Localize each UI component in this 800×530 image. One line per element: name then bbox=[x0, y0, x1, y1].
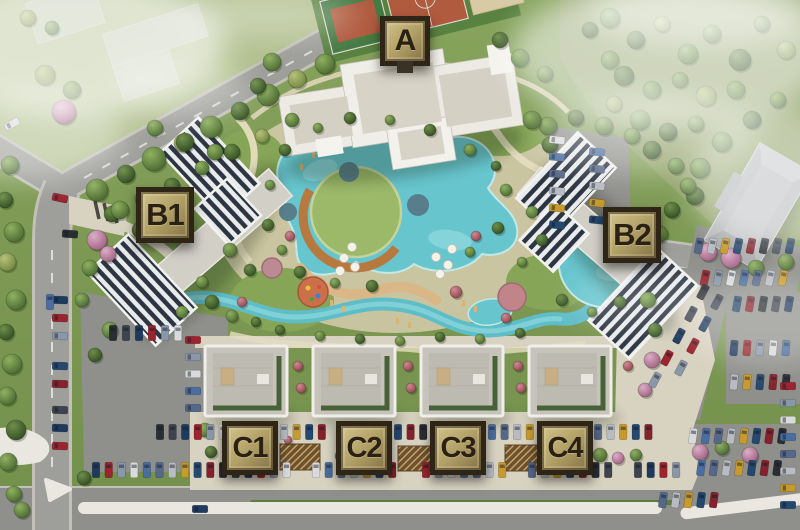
tree bbox=[516, 383, 526, 393]
car bbox=[52, 296, 68, 304]
tree bbox=[275, 325, 285, 335]
playground-round bbox=[298, 277, 328, 307]
tree bbox=[344, 112, 356, 124]
car bbox=[52, 332, 68, 340]
car bbox=[607, 424, 615, 440]
car bbox=[318, 424, 326, 440]
tree bbox=[205, 295, 219, 309]
tree bbox=[366, 280, 378, 292]
tree bbox=[244, 264, 256, 276]
car bbox=[549, 220, 565, 229]
car bbox=[62, 230, 78, 239]
tree bbox=[265, 180, 275, 190]
building-c3 bbox=[421, 346, 503, 416]
car bbox=[513, 424, 521, 440]
car bbox=[305, 424, 313, 440]
tree bbox=[424, 124, 436, 136]
car bbox=[780, 382, 796, 390]
car bbox=[604, 462, 612, 478]
car bbox=[109, 325, 117, 341]
car bbox=[549, 186, 565, 195]
tree bbox=[200, 116, 222, 138]
tree bbox=[6, 486, 22, 502]
tree bbox=[0, 253, 16, 271]
car bbox=[526, 424, 534, 440]
car bbox=[589, 181, 605, 190]
tree bbox=[251, 317, 261, 327]
tree bbox=[556, 294, 568, 306]
tree bbox=[111, 201, 129, 219]
tree bbox=[644, 352, 660, 368]
car bbox=[185, 336, 201, 344]
building-label-c2[interactable]: C2 bbox=[336, 421, 392, 475]
car bbox=[280, 424, 288, 440]
building-c4 bbox=[529, 346, 611, 416]
tree bbox=[117, 165, 135, 183]
tree bbox=[692, 444, 708, 460]
car bbox=[743, 374, 752, 390]
tree bbox=[612, 452, 624, 464]
tree bbox=[0, 387, 16, 405]
car bbox=[122, 325, 130, 341]
car bbox=[549, 169, 565, 178]
tree bbox=[207, 144, 223, 160]
tree bbox=[0, 192, 13, 208]
car bbox=[194, 462, 202, 478]
car bbox=[194, 424, 202, 440]
tree bbox=[142, 147, 166, 171]
tree bbox=[288, 70, 306, 88]
car bbox=[780, 433, 796, 441]
car bbox=[756, 374, 765, 390]
tree bbox=[778, 254, 794, 270]
tree bbox=[77, 471, 91, 485]
car bbox=[174, 325, 182, 341]
tree bbox=[255, 129, 269, 143]
car bbox=[780, 467, 796, 475]
car bbox=[419, 424, 427, 440]
tree bbox=[285, 231, 295, 241]
tree bbox=[293, 361, 303, 371]
building-label-c3[interactable]: C3 bbox=[430, 421, 486, 475]
car bbox=[52, 314, 68, 322]
tree bbox=[313, 123, 323, 133]
tree bbox=[285, 113, 299, 127]
car bbox=[769, 374, 778, 390]
car bbox=[422, 462, 430, 478]
car bbox=[185, 387, 201, 395]
car bbox=[407, 424, 415, 440]
tree bbox=[515, 328, 525, 338]
building-c2 bbox=[313, 346, 395, 416]
car bbox=[52, 442, 68, 450]
tree bbox=[517, 257, 527, 267]
tree bbox=[100, 246, 116, 262]
tree bbox=[491, 161, 501, 171]
tree bbox=[513, 361, 523, 371]
tree bbox=[262, 219, 274, 231]
car bbox=[118, 462, 126, 478]
tree bbox=[147, 120, 163, 136]
building-label-c1[interactable]: C1 bbox=[222, 421, 278, 475]
site-plan-render: A B1 B2 C1 C2 C3 C4 bbox=[0, 0, 800, 530]
car bbox=[185, 404, 201, 412]
pavilion-round bbox=[498, 283, 526, 311]
tree bbox=[330, 278, 340, 288]
tree bbox=[465, 247, 475, 257]
tree bbox=[237, 297, 247, 307]
car bbox=[293, 424, 301, 440]
tree bbox=[526, 206, 538, 218]
tree bbox=[536, 234, 548, 246]
tree bbox=[2, 354, 22, 374]
building-label-a[interactable]: A bbox=[380, 16, 430, 66]
tree bbox=[226, 310, 238, 322]
car bbox=[161, 325, 169, 341]
tree bbox=[406, 383, 416, 393]
tree bbox=[205, 446, 217, 458]
tree bbox=[395, 336, 405, 346]
tree bbox=[224, 144, 240, 160]
car bbox=[156, 462, 164, 478]
tree bbox=[315, 331, 325, 341]
car bbox=[780, 416, 796, 424]
tree bbox=[492, 222, 504, 234]
car bbox=[634, 462, 642, 478]
car bbox=[780, 484, 796, 492]
car bbox=[501, 424, 509, 440]
car bbox=[660, 462, 668, 478]
tree bbox=[176, 133, 194, 151]
car bbox=[185, 353, 201, 361]
car bbox=[312, 462, 320, 478]
tree bbox=[315, 54, 335, 74]
tree bbox=[0, 453, 17, 471]
tree bbox=[4, 222, 24, 242]
tree bbox=[385, 115, 395, 125]
car bbox=[645, 424, 653, 440]
pavilion-round bbox=[262, 258, 282, 278]
car bbox=[325, 462, 333, 478]
car bbox=[92, 462, 100, 478]
building-label-b1[interactable]: B1 bbox=[136, 187, 194, 243]
car bbox=[486, 462, 494, 478]
car bbox=[52, 362, 68, 370]
car bbox=[192, 505, 208, 513]
car bbox=[619, 424, 627, 440]
car bbox=[498, 462, 506, 478]
car bbox=[130, 462, 138, 478]
car bbox=[46, 294, 54, 310]
car bbox=[148, 325, 156, 341]
tree bbox=[223, 243, 237, 257]
tree bbox=[623, 361, 633, 371]
tree bbox=[450, 286, 462, 298]
tree bbox=[88, 348, 102, 362]
tree bbox=[296, 383, 306, 393]
tree bbox=[277, 245, 287, 255]
car bbox=[780, 399, 796, 407]
tree bbox=[464, 144, 476, 156]
car bbox=[780, 450, 796, 458]
tree bbox=[263, 53, 281, 71]
car bbox=[143, 462, 151, 478]
car bbox=[105, 462, 113, 478]
car bbox=[528, 462, 536, 478]
car bbox=[730, 374, 739, 390]
car bbox=[780, 501, 796, 509]
car bbox=[207, 424, 215, 440]
tree bbox=[593, 448, 607, 462]
aerial-scene bbox=[0, 0, 800, 530]
tree bbox=[279, 144, 291, 156]
car bbox=[594, 424, 602, 440]
car bbox=[394, 424, 402, 440]
tree bbox=[82, 260, 98, 276]
tree bbox=[501, 313, 511, 323]
car bbox=[632, 424, 640, 440]
tree bbox=[6, 420, 26, 440]
tree bbox=[500, 184, 512, 196]
car bbox=[672, 462, 680, 478]
tree bbox=[435, 332, 445, 342]
car bbox=[181, 424, 189, 440]
tree bbox=[475, 334, 485, 344]
tree bbox=[630, 449, 642, 461]
tree bbox=[355, 334, 365, 344]
car bbox=[207, 462, 215, 478]
tree bbox=[196, 276, 208, 288]
car bbox=[488, 424, 496, 440]
car bbox=[52, 406, 68, 414]
car bbox=[185, 370, 201, 378]
tree bbox=[523, 111, 541, 129]
tree bbox=[294, 266, 306, 278]
tree bbox=[0, 324, 14, 340]
tree bbox=[14, 502, 30, 518]
building-label-c4[interactable]: C4 bbox=[537, 421, 593, 475]
car bbox=[549, 203, 565, 212]
car bbox=[169, 424, 177, 440]
car bbox=[52, 424, 68, 432]
car bbox=[283, 462, 291, 478]
tree bbox=[492, 32, 508, 48]
car bbox=[52, 380, 68, 388]
car bbox=[156, 424, 164, 440]
car bbox=[135, 325, 143, 341]
building-label-b2[interactable]: B2 bbox=[603, 207, 661, 263]
tree bbox=[664, 202, 680, 218]
car bbox=[168, 462, 176, 478]
tree bbox=[176, 306, 188, 318]
tree bbox=[471, 231, 481, 241]
tree bbox=[250, 78, 266, 94]
tree bbox=[403, 361, 413, 371]
car bbox=[181, 462, 189, 478]
tree bbox=[195, 161, 209, 175]
tree bbox=[6, 290, 26, 310]
tree bbox=[86, 179, 108, 201]
building-c1 bbox=[205, 346, 287, 416]
car bbox=[647, 462, 655, 478]
tree bbox=[75, 293, 89, 307]
